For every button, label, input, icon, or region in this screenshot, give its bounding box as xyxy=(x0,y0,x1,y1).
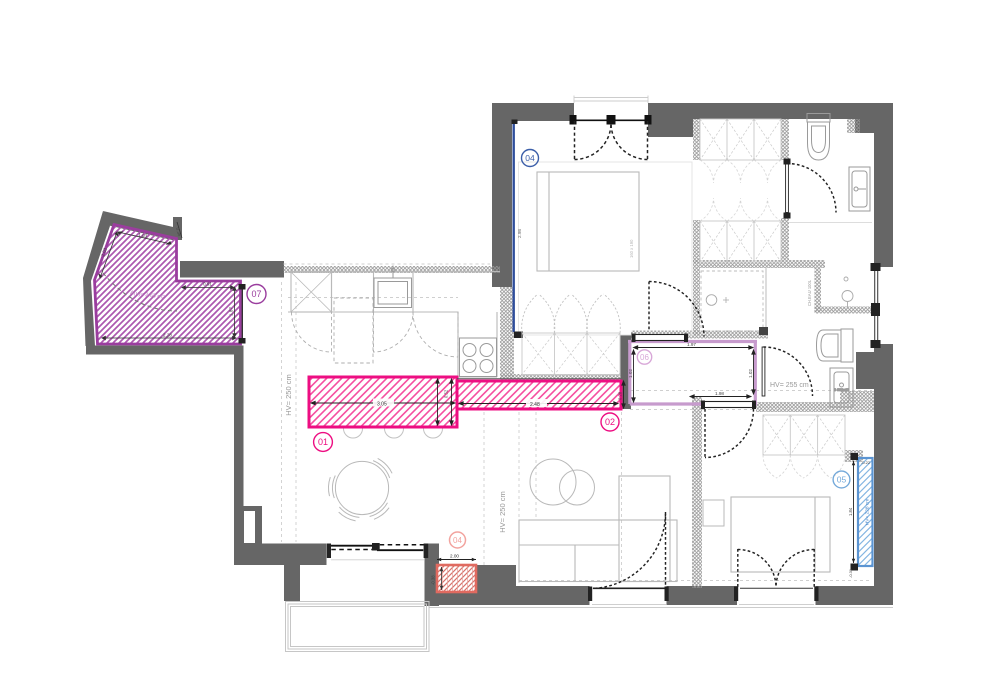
svg-text:2.28: 2.28 xyxy=(163,333,172,338)
svg-text:CH.EAU 100L: CH.EAU 100L xyxy=(807,279,812,306)
svg-text:0.52: 0.52 xyxy=(444,389,449,398)
svg-text:HV= 255 cm: HV= 255 cm xyxy=(770,382,809,389)
svg-text:-0.31: -0.31 xyxy=(848,568,853,578)
svg-text:04: 04 xyxy=(525,153,535,163)
svg-text:0.91: 0.91 xyxy=(203,282,212,287)
svg-text:06: 06 xyxy=(640,353,649,362)
svg-text:1.84: 1.84 xyxy=(848,507,853,516)
svg-text:02: 02 xyxy=(605,417,615,427)
svg-text:HV= 250 cm: HV= 250 cm xyxy=(498,491,507,532)
svg-text:04: 04 xyxy=(453,536,462,545)
svg-text:1.87: 1.87 xyxy=(229,307,234,316)
svg-text:HV= 228 cm: HV= 228 cm xyxy=(865,499,871,526)
svg-text:1.02: 1.02 xyxy=(748,369,753,378)
svg-text:2.00: 2.00 xyxy=(450,554,459,559)
svg-text:160 x 190: 160 x 190 xyxy=(629,239,634,258)
svg-text:0 600x40: 0 600x40 xyxy=(834,388,849,392)
svg-text:01: 01 xyxy=(318,437,328,447)
svg-text:0.28: 0.28 xyxy=(618,391,623,400)
svg-text:1.02: 1.02 xyxy=(628,369,633,378)
svg-text:HV= 250 cm: HV= 250 cm xyxy=(284,374,293,415)
svg-text:-0.38: -0.38 xyxy=(431,575,436,585)
svg-text:-0.22: -0.22 xyxy=(861,460,871,465)
svg-text:1.97: 1.97 xyxy=(687,342,696,347)
svg-text:07: 07 xyxy=(251,289,261,299)
svg-text:3.05: 3.05 xyxy=(377,401,387,407)
svg-text:2.48: 2.48 xyxy=(530,402,540,408)
svg-text:1.98: 1.98 xyxy=(715,391,724,396)
svg-text:05: 05 xyxy=(837,475,847,485)
svg-text:2.98: 2.98 xyxy=(517,229,522,238)
